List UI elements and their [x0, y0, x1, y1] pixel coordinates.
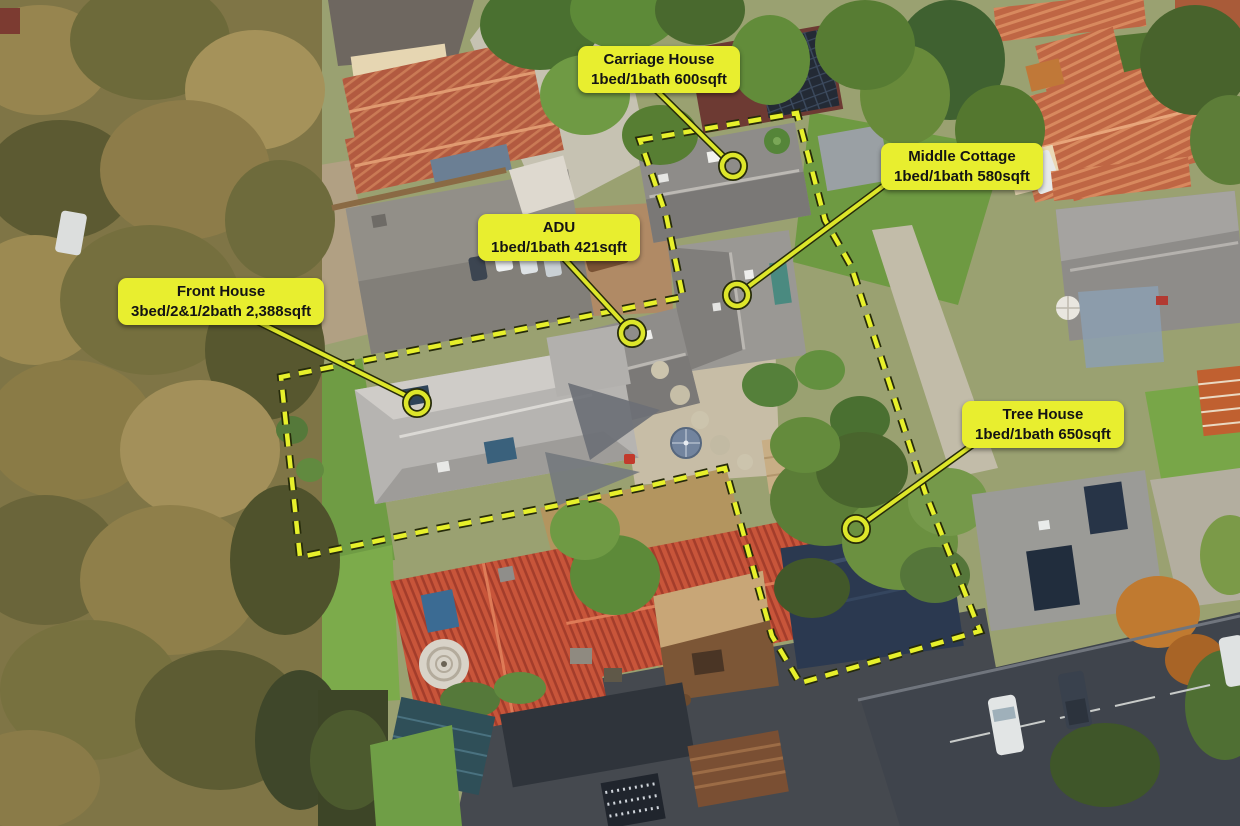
callout-line-adu [560, 254, 626, 326]
callout-line-carriage-house [652, 86, 726, 159]
callout-line-middle-cottage [745, 184, 886, 289]
callout-details: 1bed/1bath 650sqft [975, 425, 1111, 445]
callout-adu: ADU 1bed/1bath 421sqft [478, 214, 640, 261]
callout-details: 1bed/1bath 600sqft [591, 70, 727, 90]
callout-title: Middle Cottage [894, 147, 1030, 167]
callout-middle-cottage: Middle Cottage 1bed/1bath 580sqft [881, 143, 1043, 190]
aerial-property-photo: Carriage House 1bed/1bath 600sqft Middle… [0, 0, 1240, 826]
callout-line-front-house [250, 318, 409, 397]
callout-title: Front House [131, 282, 311, 302]
callout-details: 1bed/1bath 580sqft [894, 167, 1030, 187]
callout-title: ADU [491, 218, 627, 238]
callout-front-house: Front House 3bed/2&1/2bath 2,388sqft [118, 278, 324, 325]
callout-details: 3bed/2&1/2bath 2,388sqft [131, 302, 311, 322]
callout-line-tree-house [864, 441, 978, 523]
callout-details: 1bed/1bath 421sqft [491, 238, 627, 258]
callout-title: Tree House [975, 405, 1111, 425]
property-boundary-dashes [281, 113, 980, 683]
callout-carriage-house: Carriage House 1bed/1bath 600sqft [578, 46, 740, 93]
callout-tree-house: Tree House 1bed/1bath 650sqft [962, 401, 1124, 448]
property-boundary-outline [281, 113, 980, 683]
callout-title: Carriage House [591, 50, 727, 70]
